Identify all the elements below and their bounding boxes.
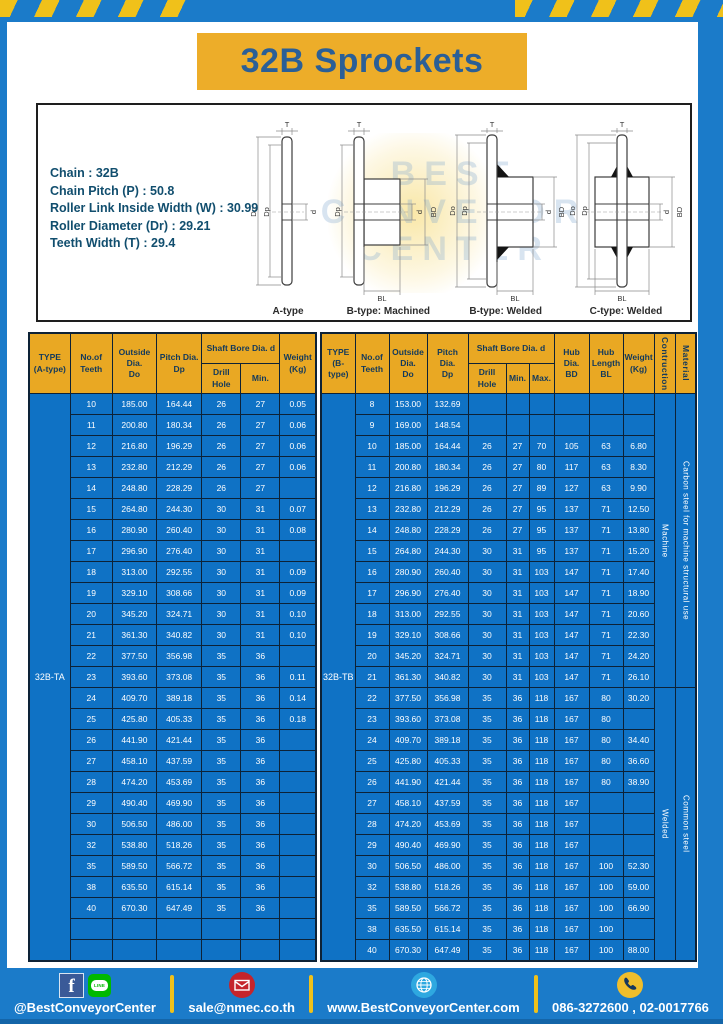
data-cell: 212.29 (427, 499, 468, 520)
table-row: 24409.70389.1835361181678034.40 (321, 730, 696, 751)
data-cell: 180.34 (157, 415, 202, 436)
data-cell: 100 (589, 877, 623, 898)
col-header-drill-hole: Drill Hole (468, 364, 506, 394)
data-cell: 31 (506, 667, 529, 688)
line-icon: LINE (88, 974, 111, 997)
b-type-machined-drawing-icon: T Dp d BD BL (332, 119, 444, 305)
data-cell: 13 (70, 457, 112, 478)
data-cell: 264.80 (389, 541, 427, 562)
data-cell: 95 (529, 541, 554, 562)
table-row: 18313.00292.5530310.09 (29, 562, 316, 583)
data-cell: 21 (70, 625, 112, 646)
data-cell: 36 (241, 856, 280, 877)
data-cell: 486.00 (427, 856, 468, 877)
table-row: 30506.50486.003536 (29, 814, 316, 835)
data-cell: 27 (355, 793, 389, 814)
data-cell: 27 (506, 520, 529, 541)
data-cell (280, 814, 316, 835)
data-cell: 35 (202, 856, 241, 877)
data-cell: 9.90 (623, 478, 654, 499)
data-cell: 0.11 (280, 667, 316, 688)
website-url: www.BestConveyorCenter.com (327, 1000, 519, 1015)
data-cell: 27 (506, 478, 529, 499)
data-cell: 20 (355, 646, 389, 667)
data-cell: 95 (529, 499, 554, 520)
data-cell: 670.30 (389, 940, 427, 962)
facebook-icon: f (59, 973, 84, 998)
c-type-welded-drawing-icon: T Do Dp d (567, 119, 685, 305)
table-row (29, 940, 316, 962)
data-cell: 30 (468, 667, 506, 688)
hazard-stripes-right-icon (515, 0, 723, 17)
data-cell: 421.44 (427, 772, 468, 793)
data-cell: 26 (468, 499, 506, 520)
data-cell: 474.20 (112, 772, 156, 793)
data-cell (70, 919, 112, 940)
data-cell: 103 (529, 583, 554, 604)
table-row: 18313.00292.5530311031477120.60 (321, 604, 696, 625)
data-cell: 9 (355, 415, 389, 436)
dim-dp: Dp (333, 207, 342, 217)
data-cell: 26.10 (623, 667, 654, 688)
dim-d: d (662, 210, 671, 214)
data-cell: 26 (468, 436, 506, 457)
data-cell: 26 (70, 730, 112, 751)
data-cell: 35 (468, 709, 506, 730)
data-cell: 329.10 (112, 583, 156, 604)
data-cell: 164.44 (427, 436, 468, 457)
col-header-pitch-dia: Pitch Dia. Dp (157, 333, 202, 394)
table-row: 27458.10437.593536 (29, 751, 316, 772)
data-cell: 36 (241, 688, 280, 709)
data-cell (589, 793, 623, 814)
data-cell (554, 394, 589, 415)
data-cell: 0.09 (280, 583, 316, 604)
table-row: 16280.90260.4030311031477117.40 (321, 562, 696, 583)
data-cell: 167 (554, 730, 589, 751)
col-header-outside-dia: Outside Dia. Do (389, 333, 427, 394)
table-row: 32B-TA10185.00164.4426270.05 (29, 394, 316, 415)
type-cell: 32B-TB (321, 394, 355, 962)
data-cell: 118 (529, 730, 554, 751)
data-cell (280, 856, 316, 877)
dim-d: d (309, 210, 318, 214)
data-cell: 36 (506, 835, 529, 856)
data-cell: 313.00 (389, 604, 427, 625)
data-cell (112, 919, 156, 940)
data-cell: 425.80 (389, 751, 427, 772)
data-cell: 103 (529, 667, 554, 688)
data-cell: 228.29 (427, 520, 468, 541)
data-cell: 373.08 (157, 667, 202, 688)
data-cell: 80 (529, 457, 554, 478)
col-header-material: Material (675, 333, 696, 394)
data-cell: 35 (202, 835, 241, 856)
data-cell: 36.60 (623, 751, 654, 772)
table-row: 20345.20324.7130310.10 (29, 604, 316, 625)
data-cell: 280.90 (389, 562, 427, 583)
col-header-hub-dia: Hub Dia. BD (554, 333, 589, 394)
data-cell: 670.30 (112, 898, 156, 919)
mail-icon (229, 972, 255, 998)
table-row: 14248.80228.292627951377113.80 (321, 520, 696, 541)
data-cell: 647.49 (157, 898, 202, 919)
data-cell: 185.00 (389, 436, 427, 457)
data-cell: 437.59 (157, 751, 202, 772)
dim-bd: BD (675, 206, 684, 217)
page: 32B Sprockets BEST CONVEYOR CENTER Chain… (0, 0, 723, 1024)
data-cell: 35 (202, 877, 241, 898)
construction-group-cell: Machine (654, 394, 675, 688)
table-row: 28474.20453.693536118167 (321, 814, 696, 835)
footer-divider (309, 975, 313, 1013)
data-cell: 216.80 (112, 436, 156, 457)
data-cell: 486.00 (157, 814, 202, 835)
data-cell: 31 (506, 625, 529, 646)
data-cell: 0.14 (280, 688, 316, 709)
phone-icon (617, 972, 643, 998)
data-cell: 36 (241, 772, 280, 793)
data-cell: 0.10 (280, 604, 316, 625)
table-row: 35589.50566.723536 (29, 856, 316, 877)
figure-b-type-machined: T Dp d BD BL (332, 111, 444, 317)
data-cell: 474.20 (389, 814, 427, 835)
data-cell: 538.80 (389, 877, 427, 898)
data-cell: 89 (529, 478, 554, 499)
data-cell: 248.80 (389, 520, 427, 541)
type-cell: 32B-TA (29, 394, 70, 962)
data-cell: 8.30 (623, 457, 654, 478)
data-cell (70, 940, 112, 962)
table-row: 26441.90421.443536 (29, 730, 316, 751)
data-cell: 425.80 (112, 709, 156, 730)
data-cell: 36 (506, 688, 529, 709)
data-cell: 34.40 (623, 730, 654, 751)
data-cell: 313.00 (112, 562, 156, 583)
dim-do: Do (448, 206, 457, 216)
data-cell: 36 (506, 919, 529, 940)
dim-d: d (415, 210, 424, 214)
data-cell: 30 (468, 604, 506, 625)
data-cell (280, 646, 316, 667)
table-row: 22377.50356.9835361181678030.20WeldedCom… (321, 688, 696, 709)
data-cell: 32 (355, 877, 389, 898)
data-cell: 409.70 (389, 730, 427, 751)
data-cell: 36 (506, 793, 529, 814)
data-cell: 248.80 (112, 478, 156, 499)
data-cell: 103 (529, 625, 554, 646)
a-type-drawing-icon: T Do Dp d (246, 119, 330, 305)
table-row: 40670.30647.49353611816710088.00 (321, 940, 696, 962)
data-cell: 27 (241, 457, 280, 478)
col-header-weight: Weight (Kg) (623, 333, 654, 394)
data-cell: 292.55 (427, 604, 468, 625)
data-cell: 469.90 (427, 835, 468, 856)
data-cell: 405.33 (427, 751, 468, 772)
data-cell: 13.80 (623, 520, 654, 541)
data-cell: 345.20 (389, 646, 427, 667)
data-cell: 469.90 (157, 793, 202, 814)
data-cell: 35 (355, 898, 389, 919)
data-cell (623, 835, 654, 856)
line-bubble: LINE (91, 980, 108, 991)
table-row: 19329.10308.6630310.09 (29, 583, 316, 604)
data-cell: 13 (355, 499, 389, 520)
data-cell: 377.50 (389, 688, 427, 709)
data-cell: 70 (529, 436, 554, 457)
data-cell: 26 (468, 520, 506, 541)
sprocket-drawings: T Do Dp d A-type (246, 111, 685, 317)
material-group-cell: Carbon steel for machine structural use (675, 394, 696, 688)
data-cell: 117 (554, 457, 589, 478)
data-cell: 36 (506, 709, 529, 730)
footer-divider (534, 975, 538, 1013)
phone-numbers: 086-3272600 , 02-0017766 (552, 1000, 709, 1015)
data-cell: 26 (202, 436, 241, 457)
data-cell: 12 (70, 436, 112, 457)
data-cell: 103 (529, 604, 554, 625)
data-cell: 80 (589, 730, 623, 751)
data-cell: 228.29 (157, 478, 202, 499)
data-cell: 71 (589, 541, 623, 562)
data-cell (112, 940, 156, 962)
data-cell: 40 (355, 940, 389, 962)
data-cell: 167 (554, 898, 589, 919)
data-cell (280, 541, 316, 562)
data-cell: 35 (70, 856, 112, 877)
data-cell: 31 (506, 583, 529, 604)
table-row: 29490.40469.903536 (29, 793, 316, 814)
data-cell: 20 (70, 604, 112, 625)
data-cell: 506.50 (389, 856, 427, 877)
data-cell: 27 (241, 394, 280, 415)
footer-contact-bar: f LINE @BestConveyorCenter sale@nmec.co.… (0, 968, 723, 1024)
data-cell: 24.20 (623, 646, 654, 667)
data-cell: 373.08 (427, 709, 468, 730)
data-cell: 453.69 (427, 814, 468, 835)
data-cell: 36 (241, 730, 280, 751)
data-cell (202, 940, 241, 962)
table-row: 30506.50486.00353611816710052.30 (321, 856, 696, 877)
data-cell: 19 (355, 625, 389, 646)
data-cell: 30 (202, 520, 241, 541)
dim-bd: BD (429, 206, 438, 217)
data-cell: 196.29 (157, 436, 202, 457)
data-cell: 490.40 (112, 793, 156, 814)
data-cell: 167 (554, 688, 589, 709)
chain-specs: Chain : 32B Chain Pitch (P) : 50.8 Rolle… (50, 165, 258, 253)
data-cell: 148.54 (427, 415, 468, 436)
b-type-machined-label: B-type: Machined (347, 306, 430, 317)
data-cell: 490.40 (389, 835, 427, 856)
data-cell: 566.72 (427, 898, 468, 919)
data-cell (202, 919, 241, 940)
data-cell (280, 772, 316, 793)
data-cell: 95 (529, 520, 554, 541)
data-cell: 118 (529, 688, 554, 709)
data-cell: 36 (506, 877, 529, 898)
data-cell: 66.90 (623, 898, 654, 919)
data-cell: 31 (241, 499, 280, 520)
data-cell: 377.50 (112, 646, 156, 667)
data-cell: 26 (355, 772, 389, 793)
data-cell: 147 (554, 625, 589, 646)
data-cell: 71 (589, 604, 623, 625)
data-cell (529, 394, 554, 415)
data-cell: 185.00 (112, 394, 156, 415)
data-cell: 30 (468, 583, 506, 604)
data-cell: 15.20 (623, 541, 654, 562)
data-cell: 292.55 (157, 562, 202, 583)
data-cell: 147 (554, 646, 589, 667)
data-cell: 17 (355, 583, 389, 604)
col-header-shaft-bore: Shaft Bore Dia. d (468, 333, 554, 364)
spec-tables: TYPE (A-type) No.of Teeth Outside Dia. D… (28, 332, 697, 962)
data-cell: 71 (589, 520, 623, 541)
data-cell (589, 415, 623, 436)
data-cell: 167 (554, 940, 589, 962)
data-cell: 35 (202, 793, 241, 814)
data-cell (623, 415, 654, 436)
data-cell: 615.14 (427, 919, 468, 940)
data-cell: 137 (554, 541, 589, 562)
data-cell: 38 (70, 877, 112, 898)
data-cell: 59.00 (623, 877, 654, 898)
data-cell: 35 (202, 898, 241, 919)
data-cell: 393.60 (112, 667, 156, 688)
data-cell: 28 (355, 814, 389, 835)
data-cell: 17 (70, 541, 112, 562)
data-cell: 14 (355, 520, 389, 541)
data-cell: 35 (202, 814, 241, 835)
data-cell: 35 (468, 772, 506, 793)
col-header-weight: Weight (Kg) (280, 333, 316, 394)
data-cell: 18 (70, 562, 112, 583)
data-cell: 30 (468, 646, 506, 667)
data-cell: 24 (70, 688, 112, 709)
data-cell: 71 (589, 625, 623, 646)
data-cell: 147 (554, 604, 589, 625)
data-cell: 36 (241, 751, 280, 772)
table-row: 10185.00164.44262770105636.80 (321, 436, 696, 457)
dim-do: Do (568, 206, 577, 216)
material-group-cell: Common steel (675, 688, 696, 962)
data-cell: 36 (241, 709, 280, 730)
table-row: 9169.00148.54 (321, 415, 696, 436)
table-row: 21361.30340.8230310.10 (29, 625, 316, 646)
table-row: 13232.80212.292627951377112.50 (321, 499, 696, 520)
col-header-shaft-bore: Shaft Bore Dia. d (202, 333, 280, 364)
data-cell: 118 (529, 919, 554, 940)
col-header-teeth: No.of Teeth (70, 333, 112, 394)
table-row: 20345.20324.7130311031477124.20 (321, 646, 696, 667)
data-cell: 19 (70, 583, 112, 604)
data-cell: 12 (355, 478, 389, 499)
data-cell: 31 (241, 541, 280, 562)
col-header-teeth: No.of Teeth (355, 333, 389, 394)
data-cell: 232.80 (389, 499, 427, 520)
data-cell: 35 (468, 898, 506, 919)
data-cell (280, 835, 316, 856)
data-cell: 118 (529, 898, 554, 919)
data-cell: 40 (70, 898, 112, 919)
data-cell: 167 (554, 709, 589, 730)
spec-chain: Chain : 32B (50, 165, 258, 183)
data-cell: 35 (202, 730, 241, 751)
figure-b-type-welded: T Do Dp d BD (447, 111, 565, 317)
data-cell: 26 (202, 394, 241, 415)
col-header-type: TYPE (A-type) (29, 333, 70, 394)
data-cell: 18.90 (623, 583, 654, 604)
data-cell: 409.70 (112, 688, 156, 709)
data-cell: 118 (529, 940, 554, 962)
dim-d: d (544, 210, 553, 214)
data-cell: 35 (468, 793, 506, 814)
table-row: 17296.90276.403031 (29, 541, 316, 562)
dim-dp: Dp (460, 206, 469, 216)
data-cell (280, 919, 316, 940)
b-type-welded-drawing-icon: T Do Dp d BD (447, 119, 565, 305)
data-cell: 30 (202, 499, 241, 520)
data-cell: 35 (468, 814, 506, 835)
data-cell: 80 (589, 772, 623, 793)
data-cell: 17.40 (623, 562, 654, 583)
data-cell: 30 (202, 625, 241, 646)
col-header-type: TYPE (B-type) (321, 333, 355, 394)
footer-social: f LINE @BestConveyorCenter (14, 973, 156, 1015)
data-cell: 29 (355, 835, 389, 856)
col-header-construction: Contruction (654, 333, 675, 394)
top-hazard-bar (0, 0, 723, 22)
data-cell: 167 (554, 835, 589, 856)
table-row: 21361.30340.8230311031477126.10 (321, 667, 696, 688)
data-cell: 27 (506, 499, 529, 520)
data-cell: 30 (355, 856, 389, 877)
data-cell: 35 (468, 856, 506, 877)
data-cell: 167 (554, 772, 589, 793)
data-cell: 345.20 (112, 604, 156, 625)
table-row: 32B-TB8153.00132.69MachineCarbon steel f… (321, 394, 696, 415)
data-cell (280, 940, 316, 962)
data-cell: 458.10 (112, 751, 156, 772)
data-cell (589, 394, 623, 415)
data-cell: 22 (355, 688, 389, 709)
table-row: 13232.80212.2926270.06 (29, 457, 316, 478)
table-row: 23393.60373.0835360.11 (29, 667, 316, 688)
table-row: 26441.90421.4435361181678038.90 (321, 772, 696, 793)
data-cell: 30.20 (623, 688, 654, 709)
data-cell: 35 (468, 919, 506, 940)
footer-email: sale@nmec.co.th (188, 972, 295, 1015)
dim-dp: Dp (580, 206, 589, 216)
data-cell: 16 (70, 520, 112, 541)
data-cell: 35 (202, 772, 241, 793)
data-cell: 308.66 (427, 625, 468, 646)
data-cell: 458.10 (389, 793, 427, 814)
table-row: 32538.80518.263536 (29, 835, 316, 856)
data-cell: 31 (506, 604, 529, 625)
data-cell: 35 (468, 940, 506, 962)
table-row: 22377.50356.983536 (29, 646, 316, 667)
table-row: 15264.80244.3030310.07 (29, 499, 316, 520)
col-header-hub-length: Hub Length BL (589, 333, 623, 394)
data-cell (506, 394, 529, 415)
data-cell: 200.80 (389, 457, 427, 478)
data-cell: 615.14 (157, 877, 202, 898)
col-header-outside-dia: Outside Dia. Do (112, 333, 156, 394)
data-cell (529, 415, 554, 436)
table-row: 14248.80228.292627 (29, 478, 316, 499)
